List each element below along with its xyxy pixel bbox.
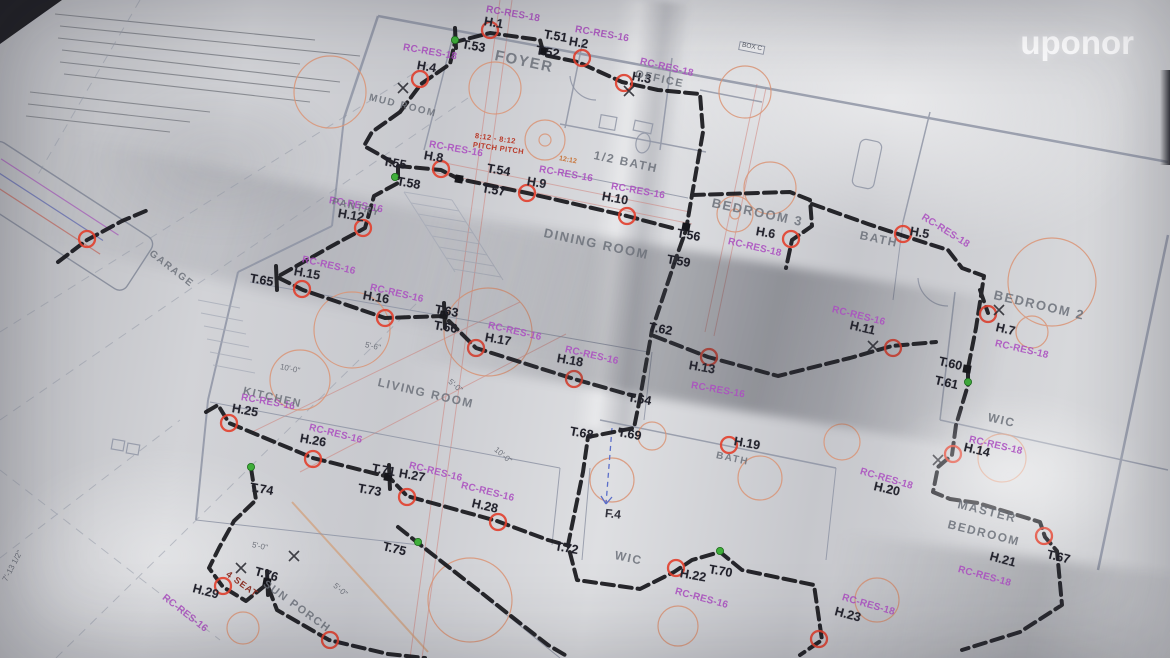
heat-loop-label: H.6 — [755, 225, 776, 241]
tube-label: T.69 — [617, 426, 642, 442]
tube-label: T.58 — [396, 175, 421, 191]
heat-loop-label: H.21 — [988, 550, 1017, 569]
tube-label: T.62 — [648, 321, 673, 337]
paper-edge-shadow — [1160, 70, 1170, 165]
heat-loop-label: H.4 — [416, 59, 437, 75]
room-label: MUD ROOM — [368, 93, 438, 120]
dimension-label: 7'-13 1/2" — [1, 549, 24, 583]
tube-label: T.67 — [1045, 548, 1071, 566]
product-code-label: RC-RES-16 — [690, 381, 746, 400]
product-code-label: RC-RES-18 — [957, 565, 1012, 589]
tube-label: T.75 — [381, 540, 407, 558]
tube-label: T.61 — [934, 374, 960, 391]
room-label: DINING ROOM — [543, 226, 651, 261]
tube-label: T.55 — [382, 155, 407, 171]
pitch-annotation: 12:12 — [558, 155, 577, 165]
heat-loop-label: H.13 — [688, 359, 716, 376]
dimension-label: 5'-0" — [331, 582, 348, 598]
tube-label: T.64 — [627, 391, 652, 407]
room-label: BATH — [859, 229, 899, 249]
dimension-label: 5'-6" — [364, 341, 381, 352]
product-code-label: RC-RES-16 — [674, 587, 729, 611]
room-label: GARAGE — [147, 249, 195, 290]
zone-label: F.4 — [604, 507, 621, 521]
tube-label: T.68 — [569, 425, 594, 441]
dimension-label: 10'-0" — [492, 446, 513, 465]
box-label: BOX C — [738, 41, 765, 54]
tube-label: T.60 — [938, 355, 964, 372]
tube-label: T.74 — [249, 481, 274, 497]
room-label: SUN PORCH — [261, 579, 333, 635]
dimension-label: 5'-0" — [251, 541, 268, 552]
tube-label: T.53 — [461, 38, 486, 54]
heat-loop-label: H.2 — [568, 35, 589, 51]
room-label: LIVING ROOM — [377, 376, 475, 410]
heat-loop-label: H.23 — [833, 605, 862, 624]
heat-loop-label: H.28 — [471, 497, 500, 515]
heat-loop-label: H.7 — [995, 321, 1017, 338]
plan-labels-layer: T.53T.51T.52T.55T.58T.54T.57T.56T.59T.65… — [0, 0, 1170, 658]
dimension-label: 10'-0" — [279, 363, 301, 375]
tube-label: T.66 — [433, 319, 458, 335]
heat-loop-label: H.5 — [909, 225, 930, 241]
tube-label: T.59 — [666, 253, 691, 269]
product-code-label: RC-RES-16 — [160, 593, 209, 634]
tube-label: T.73 — [357, 482, 382, 498]
tube-label: T.51 — [543, 28, 568, 44]
tube-label: T.56 — [676, 227, 701, 243]
heat-loop-label: H.29 — [191, 582, 220, 601]
room-label: 1/2 BATH — [593, 149, 659, 174]
tube-label: T.54 — [486, 162, 511, 178]
product-code-label: RC-RES-18 — [994, 339, 1049, 361]
tube-label: T.71 — [371, 462, 396, 478]
room-label: WIC — [614, 549, 644, 567]
room-label: BATH — [715, 451, 750, 468]
heat-loop-label: H.22 — [679, 567, 707, 584]
tube-label: T.70 — [708, 563, 733, 579]
uponor-logo: uponor — [1020, 24, 1134, 62]
room-label: WIC — [987, 411, 1017, 429]
heat-loop-label: H.9 — [526, 175, 547, 191]
tube-label: T.72 — [554, 540, 579, 556]
tube-label: T.57 — [481, 182, 506, 198]
room-label: BEDROOM 2 — [993, 288, 1087, 322]
tube-label: T.63 — [434, 303, 459, 319]
tube-label: T.65 — [249, 272, 274, 288]
blueprint-photo: T.53T.51T.52T.55T.58T.54T.57T.56T.59T.65… — [0, 0, 1170, 658]
heat-loop-label: H.19 — [733, 435, 761, 452]
